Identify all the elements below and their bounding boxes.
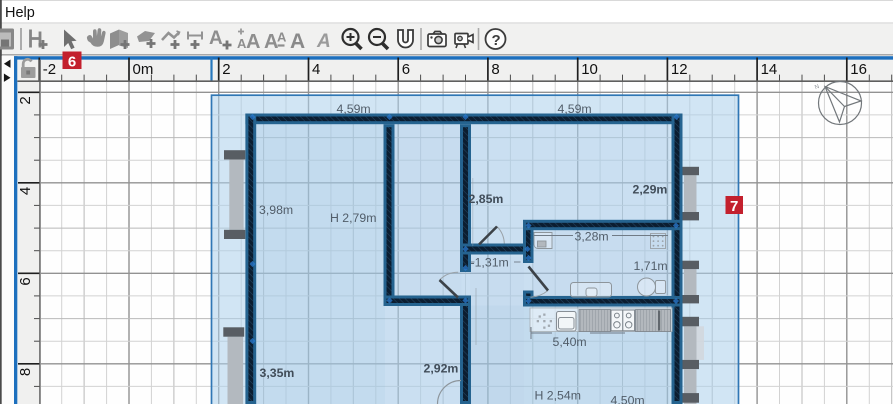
svg-text:4: 4 bbox=[17, 187, 34, 195]
svg-text:2,92m: 2,92m bbox=[424, 362, 459, 376]
svg-text:4,50m: 4,50m bbox=[611, 394, 645, 405]
svg-text:2,29m: 2,29m bbox=[633, 183, 668, 197]
svg-text:3,35m: 3,35m bbox=[260, 366, 295, 380]
svg-text:10: 10 bbox=[581, 61, 598, 78]
svg-text:12: 12 bbox=[671, 61, 688, 78]
svg-text:A: A bbox=[316, 31, 331, 52]
svg-text:A: A bbox=[290, 30, 305, 53]
svg-text:3,28m: 3,28m bbox=[575, 230, 609, 244]
svg-text:8: 8 bbox=[491, 61, 499, 78]
svg-text:A: A bbox=[246, 31, 260, 53]
svg-text:2: 2 bbox=[17, 96, 34, 104]
svg-text:2: 2 bbox=[222, 61, 230, 78]
svg-text:?: ? bbox=[492, 32, 501, 49]
svg-text:4,59m: 4,59m bbox=[337, 102, 371, 116]
svg-text:6: 6 bbox=[402, 61, 410, 78]
svg-text:4,59m: 4,59m bbox=[558, 102, 592, 116]
svg-text:4: 4 bbox=[312, 61, 320, 78]
svg-text:8: 8 bbox=[17, 368, 34, 376]
svg-text:Help: Help bbox=[5, 5, 35, 21]
svg-text:2,85m: 2,85m bbox=[469, 192, 504, 206]
svg-text:1,71m: 1,71m bbox=[634, 259, 668, 273]
svg-text:7: 7 bbox=[730, 198, 738, 215]
svg-text:0m: 0m bbox=[133, 61, 154, 78]
svg-text:-1,31m: -1,31m bbox=[471, 256, 509, 270]
svg-text:5,40m: 5,40m bbox=[553, 335, 587, 349]
svg-text:16: 16 bbox=[850, 61, 867, 78]
svg-text:H 2,79m: H 2,79m bbox=[330, 211, 376, 225]
svg-text:H 2,54m: H 2,54m bbox=[535, 389, 581, 403]
svg-text:A: A bbox=[277, 30, 287, 45]
svg-text:3,98m: 3,98m bbox=[259, 203, 293, 217]
svg-text:6: 6 bbox=[68, 53, 76, 70]
svg-text:6: 6 bbox=[17, 277, 34, 285]
svg-text:A: A bbox=[209, 28, 223, 49]
svg-text:-2: -2 bbox=[43, 61, 56, 78]
svg-text:14: 14 bbox=[761, 61, 778, 78]
